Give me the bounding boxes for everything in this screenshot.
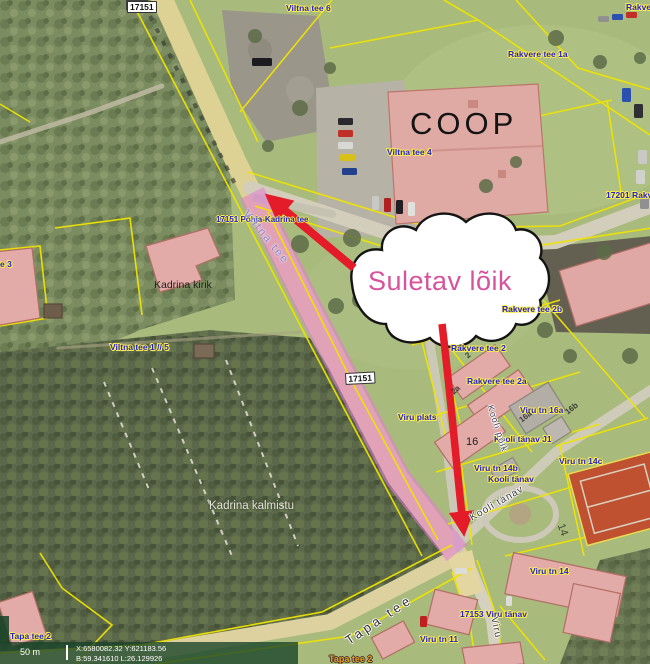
map-label-tee-3-clipped: e 3	[0, 260, 12, 269]
map-label-tapa-tee-2: Tapa tee 2	[10, 632, 51, 641]
coordinate-bl: B:59.341610 L:26.129926	[76, 654, 166, 664]
map-label-rakvere-tee-2b: Rakvere tee 2b	[502, 305, 562, 314]
map-label-road-number-mid: 17151	[345, 371, 375, 385]
map-label-kooli-tanav-addr: Kooli tänav	[488, 475, 534, 484]
map-base-layer	[0, 0, 650, 664]
coordinate-xy: X:6580082.32 Y:621183.56	[76, 644, 166, 654]
coordinates-readout: X:6580082.32 Y:621183.56 B:59.341610 L:2…	[76, 644, 166, 663]
map-label-kadrina-kalmistu: Kadrina kalmistu	[209, 500, 294, 513]
map-canvas[interactable]: 17151Viltna tee 6RakverRakvere tee 1aCOO…	[0, 0, 650, 664]
closure-callout-label: Suletav lõik	[350, 266, 530, 297]
map-label-viltna-tee-1-5: Viltna tee 1 // 5	[110, 343, 169, 352]
map-label-viru-tn-14c: Viru tn 14c	[559, 457, 602, 466]
map-label-viltna-tee-4: Viltna tee 4	[387, 148, 432, 157]
map-label-coop: COOP	[410, 107, 517, 141]
scale-tick	[66, 645, 68, 660]
map-label-rakvere-tee-2a: Rakvere tee 2a	[467, 377, 527, 386]
map-label-rakvere-tee-1a: Rakvere tee 1a	[508, 50, 568, 59]
map-label-rakvere-top-right: Rakver	[626, 3, 650, 12]
map-label-viru-tn-14: Viru tn 14	[530, 567, 569, 576]
map-label-viru-tn-14b: Viru tn 14b	[474, 464, 518, 473]
map-label-num-16: 16	[466, 436, 478, 448]
map-label-viru-tn-11: Viru tn 11	[420, 635, 458, 644]
map-label-tapa-tee-2-clipped: Tapa tee 2	[329, 655, 372, 664]
map-label-rakvere-17201: 17201 Rakv	[606, 191, 650, 200]
map-label-rakvere-tee-2: Rakvere tee 2	[451, 344, 506, 353]
status-bar: 50 m X:6580082.32 Y:621183.56 B:59.34161…	[0, 642, 298, 664]
map-label-viru-plats: Viru plats	[398, 413, 437, 422]
map-label-road-number-top: 17151	[127, 1, 157, 13]
scale-label: 50 m	[20, 647, 40, 657]
map-label-viltna-tee-6: Viltna tee 6	[286, 4, 331, 13]
map-label-kadrina-kirik: Kadrina kirik	[154, 280, 212, 292]
toolbar-corner-chip	[0, 616, 9, 643]
